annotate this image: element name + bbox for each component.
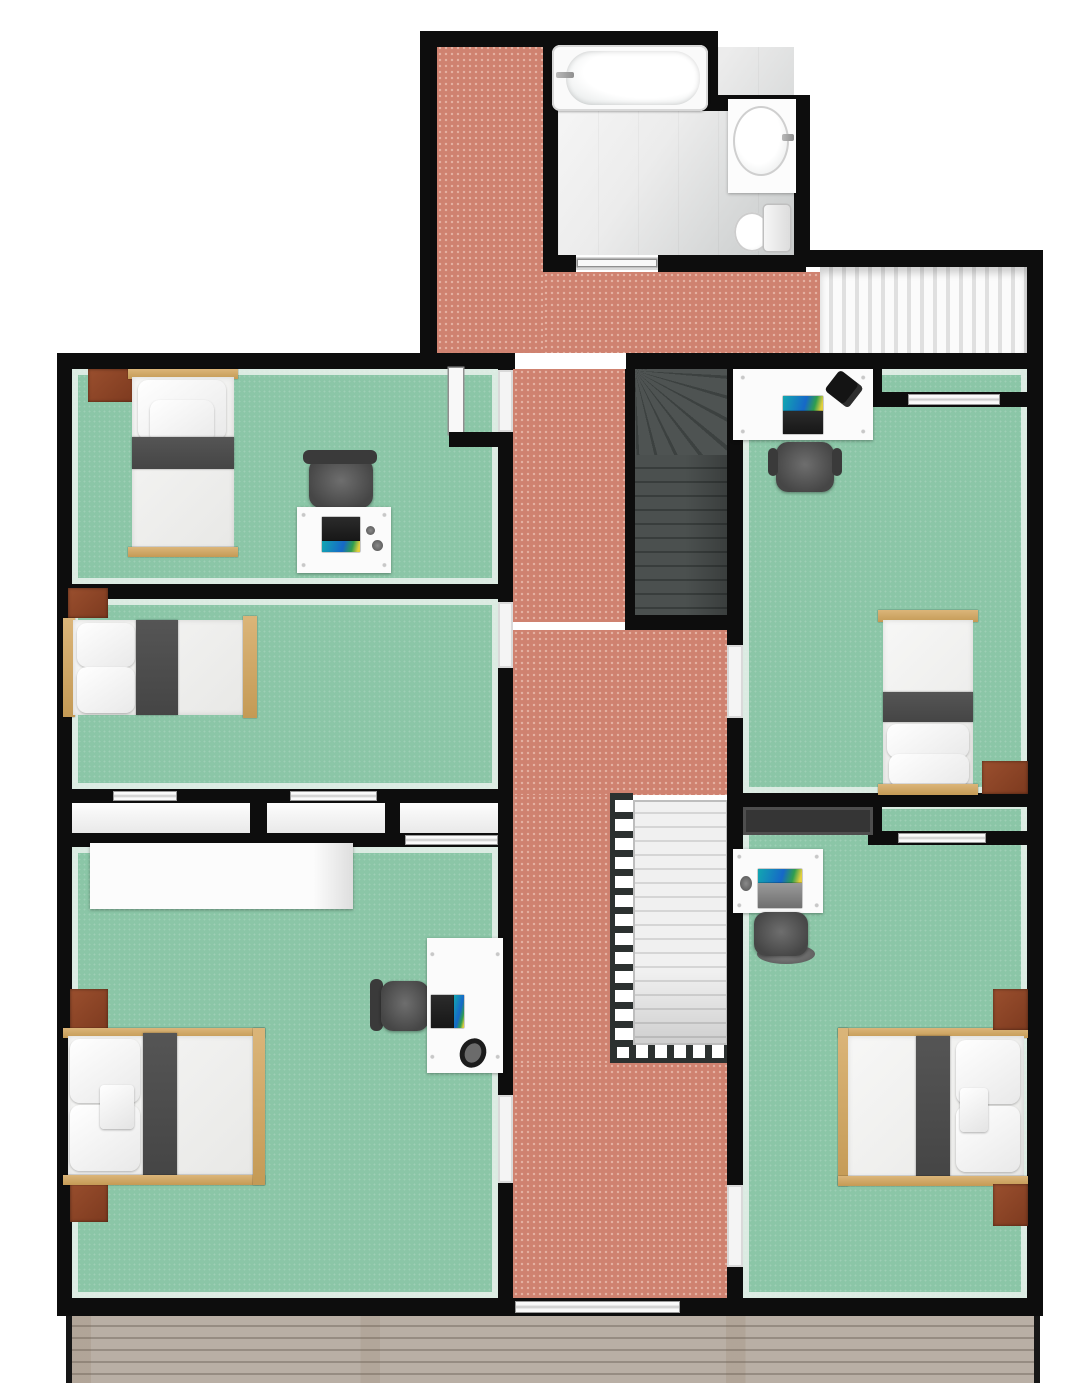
wall-closet-divider: [250, 803, 267, 833]
bed-frame-foot: [878, 784, 978, 795]
sink-faucet: [782, 134, 794, 141]
office-chair-arm: [768, 448, 778, 476]
bed-tray: [100, 1085, 134, 1129]
bedroom-middle-left-door-opening: [498, 602, 513, 668]
bed-runner: [132, 437, 234, 469]
wall-stairs-south: [625, 615, 742, 630]
wall-closet-divider: [385, 803, 400, 833]
long-dresser: [90, 843, 353, 909]
laptop-keyboard: [783, 411, 823, 434]
hallway-floor-top-vertical: [437, 45, 543, 353]
wall-right-rooms-west: [727, 353, 743, 1315]
nightstand: [70, 989, 108, 1032]
nightstand: [982, 761, 1028, 794]
laptop-screen: [783, 396, 823, 411]
pillow: [77, 623, 135, 667]
laptop-keyboard: [431, 995, 454, 1028]
laptop-keyboard: [322, 517, 360, 541]
hallway-floor-mid-vertical: [513, 369, 633, 622]
bed-frame-foot: [128, 547, 238, 557]
bed-tray: [960, 1088, 988, 1132]
bed-frame-foot: [63, 1175, 265, 1185]
bed-frame-side: [253, 1028, 265, 1185]
sink-basin: [733, 106, 789, 176]
bedroom-top-left-door-opening: [498, 370, 513, 432]
laptop-screen: [758, 869, 802, 883]
wall: [626, 353, 1043, 369]
bathtub-basin: [566, 51, 700, 105]
laptop-screen: [454, 995, 464, 1028]
bedroom-bottom-left-door-opening: [498, 1095, 513, 1183]
deck-floor: [66, 1315, 1040, 1383]
office-chair-arm: [832, 448, 842, 476]
stair-railing-bottom: [610, 1045, 728, 1063]
pillow: [77, 667, 135, 713]
bed-frame-foot: [243, 616, 257, 718]
wall: [658, 255, 806, 272]
hallway-floor-mid-wide: [513, 630, 727, 795]
bedroom-top-left-door-leaf: [449, 368, 463, 434]
wall: [420, 31, 437, 353]
upper-stairs-winder-steps: [633, 369, 727, 457]
linen-closet-shelving: [820, 267, 1027, 353]
wall-right-rooms-divider: [727, 793, 1043, 807]
pillow: [887, 724, 969, 758]
hallway-floor-lower-vertical: [513, 795, 610, 1063]
wall-bedroom-divider: [57, 584, 513, 599]
office-chair: [381, 981, 429, 1031]
office-chair: [776, 442, 834, 492]
nightstand: [993, 989, 1028, 1030]
closet-sliding-door-track: [405, 835, 498, 845]
floor-plan: [0, 0, 1091, 1383]
laptop-keyboard: [758, 883, 802, 908]
deck-sliding-door: [515, 1301, 680, 1313]
wall: [794, 95, 810, 263]
bed-runner: [143, 1033, 177, 1176]
nightstand: [993, 1184, 1028, 1226]
wall: [57, 353, 515, 369]
office-chair: [754, 912, 808, 956]
mouse: [740, 876, 752, 891]
upper-stairs-straight-steps: [633, 455, 727, 615]
pillow: [889, 754, 969, 786]
bedroom-top-right-door-opening: [727, 645, 743, 718]
closet-sliding-door-track: [908, 394, 1000, 405]
wall: [794, 250, 1043, 267]
hallway-floor-top-horizontal: [543, 272, 820, 353]
wall: [543, 255, 576, 272]
office-chair: [309, 458, 373, 508]
lower-stairs-steps: [633, 800, 728, 1045]
closet-sliding-door-track: [113, 791, 177, 801]
office-chair-back: [303, 450, 377, 464]
hallway-floor-bottom: [513, 1063, 727, 1298]
bedroom-bottom-right-door-opening: [727, 1185, 743, 1267]
bed-frame-side: [838, 1028, 848, 1186]
mouse: [366, 526, 375, 535]
bed-runner: [883, 692, 973, 722]
mouse: [372, 540, 383, 551]
bathroom-door-leaf: [578, 260, 656, 266]
wall-stairs-west: [625, 369, 635, 622]
wall-right-exterior: [1027, 250, 1043, 1315]
closet-sliding-door-track: [898, 833, 986, 843]
bed-runner: [916, 1036, 950, 1178]
stair-railing-left: [610, 793, 633, 1063]
closet-sliding-door-track: [290, 791, 377, 801]
bed-runner: [136, 620, 178, 715]
laptop-screen: [322, 541, 360, 552]
wall-stub: [449, 432, 513, 447]
bathtub-faucet: [556, 72, 574, 78]
left-closets-interior: [72, 803, 498, 833]
nightstand: [68, 588, 108, 618]
toilet-tank: [764, 205, 790, 251]
dark-wardrobe: [743, 807, 873, 835]
